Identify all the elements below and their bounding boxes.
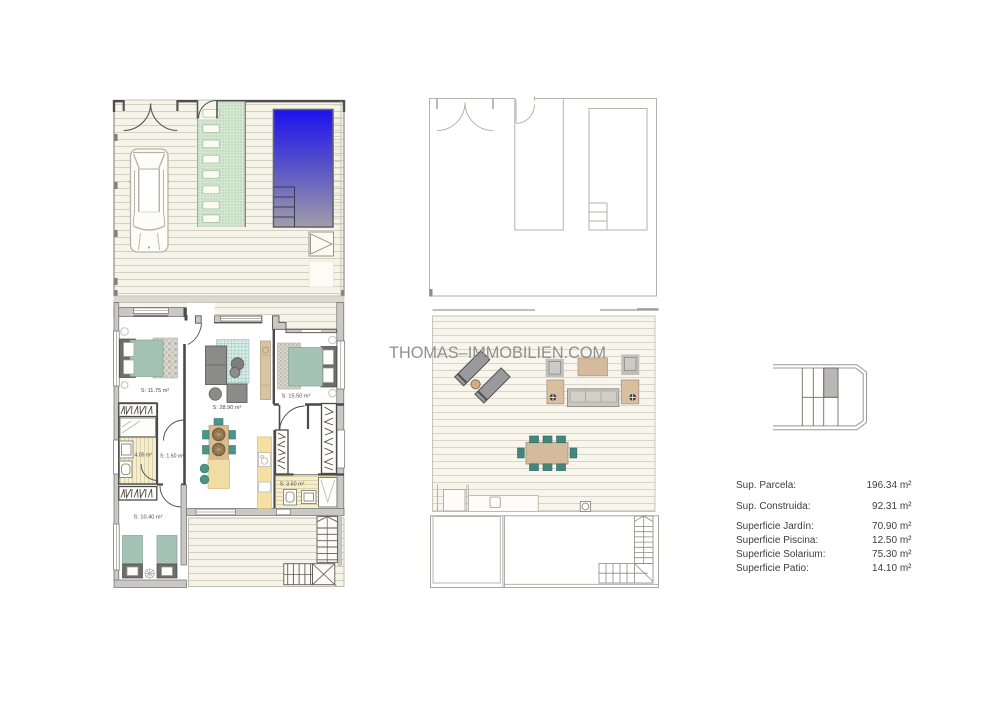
- svg-text:14.10 m²: 14.10 m²: [872, 563, 912, 574]
- svg-text:S: 3.60 m²: S: 3.60 m²: [280, 482, 305, 488]
- svg-text:Superficie Piscina:: Superficie Piscina:: [736, 535, 818, 546]
- svg-text:12.50 m²: 12.50 m²: [872, 535, 912, 546]
- svg-text:S: 11.75 m²: S: 11.75 m²: [141, 388, 170, 394]
- svg-text:Sup. Parcela:: Sup. Parcela:: [736, 480, 796, 491]
- svg-text:S: 1.60 m²: S: 1.60 m²: [160, 454, 184, 460]
- svg-text:Superficie Patio:: Superficie Patio:: [736, 563, 809, 574]
- svg-text:S: 28.90 m²: S: 28.90 m²: [213, 405, 242, 411]
- svg-text:S: 15.50 m²: S: 15.50 m²: [282, 394, 311, 400]
- svg-text:THOMAS–IMMOBILIEN.COM: THOMAS–IMMOBILIEN.COM: [389, 344, 606, 362]
- svg-text:75.30 m²: 75.30 m²: [872, 549, 912, 560]
- svg-text:Sup. Construida:: Sup. Construida:: [736, 501, 811, 512]
- svg-text:Superficie Jardín:: Superficie Jardín:: [736, 521, 814, 532]
- svg-text:92.31 m²: 92.31 m²: [872, 501, 912, 512]
- svg-text:Superficie Solarium:: Superficie Solarium:: [736, 549, 825, 560]
- svg-text:S: 10.40 m²: S: 10.40 m²: [134, 515, 163, 521]
- svg-text:196.34 m²: 196.34 m²: [866, 480, 912, 491]
- svg-text:70.90 m²: 70.90 m²: [872, 521, 912, 532]
